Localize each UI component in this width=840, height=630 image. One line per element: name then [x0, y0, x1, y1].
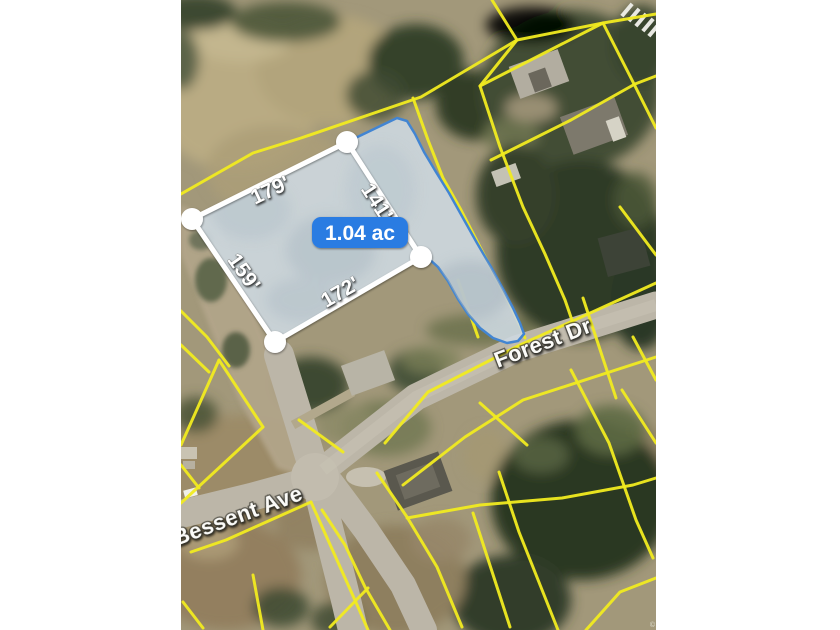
area-badge[interactable]: 1.04 ac: [312, 217, 408, 248]
vertex-handle[interactable]: [264, 331, 286, 353]
shed-roof: [181, 447, 197, 459]
vertex-handle[interactable]: [181, 208, 203, 230]
vertex-handle[interactable]: [336, 131, 358, 153]
screenshot-canvas: 179' 141' 159' 172' 1.04 ac Forest Dr Be…: [0, 0, 840, 630]
aerial-map[interactable]: 179' 141' 159' 172' 1.04 ac Forest Dr Be…: [181, 0, 656, 630]
map-viewport[interactable]: 179' 141' 159' 172' 1.04 ac Forest Dr Be…: [181, 0, 656, 630]
area-badge-label: 1.04 ac: [325, 222, 395, 245]
map-attribution: ©: [650, 621, 656, 629]
vertex-handle[interactable]: [410, 246, 432, 268]
